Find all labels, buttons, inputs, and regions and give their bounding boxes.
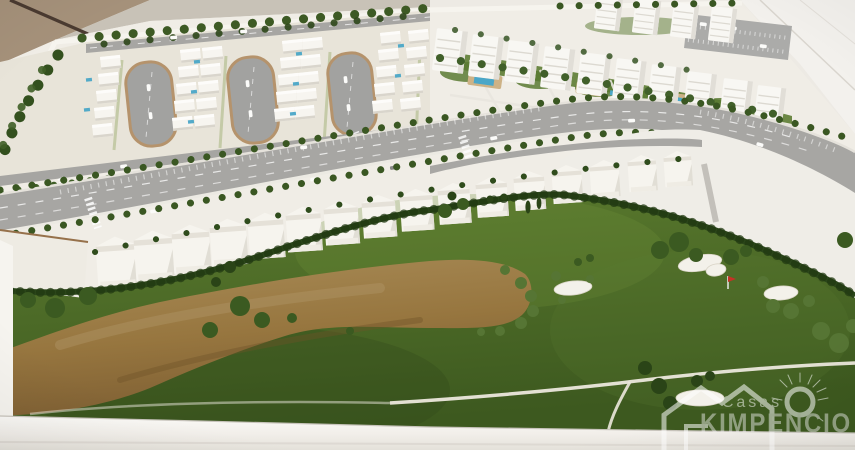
photo-vignette <box>0 0 855 450</box>
scene-canvas: Casas KIMPENCIO <box>0 0 855 450</box>
model-photo: Casas KIMPENCIO <box>0 0 855 450</box>
